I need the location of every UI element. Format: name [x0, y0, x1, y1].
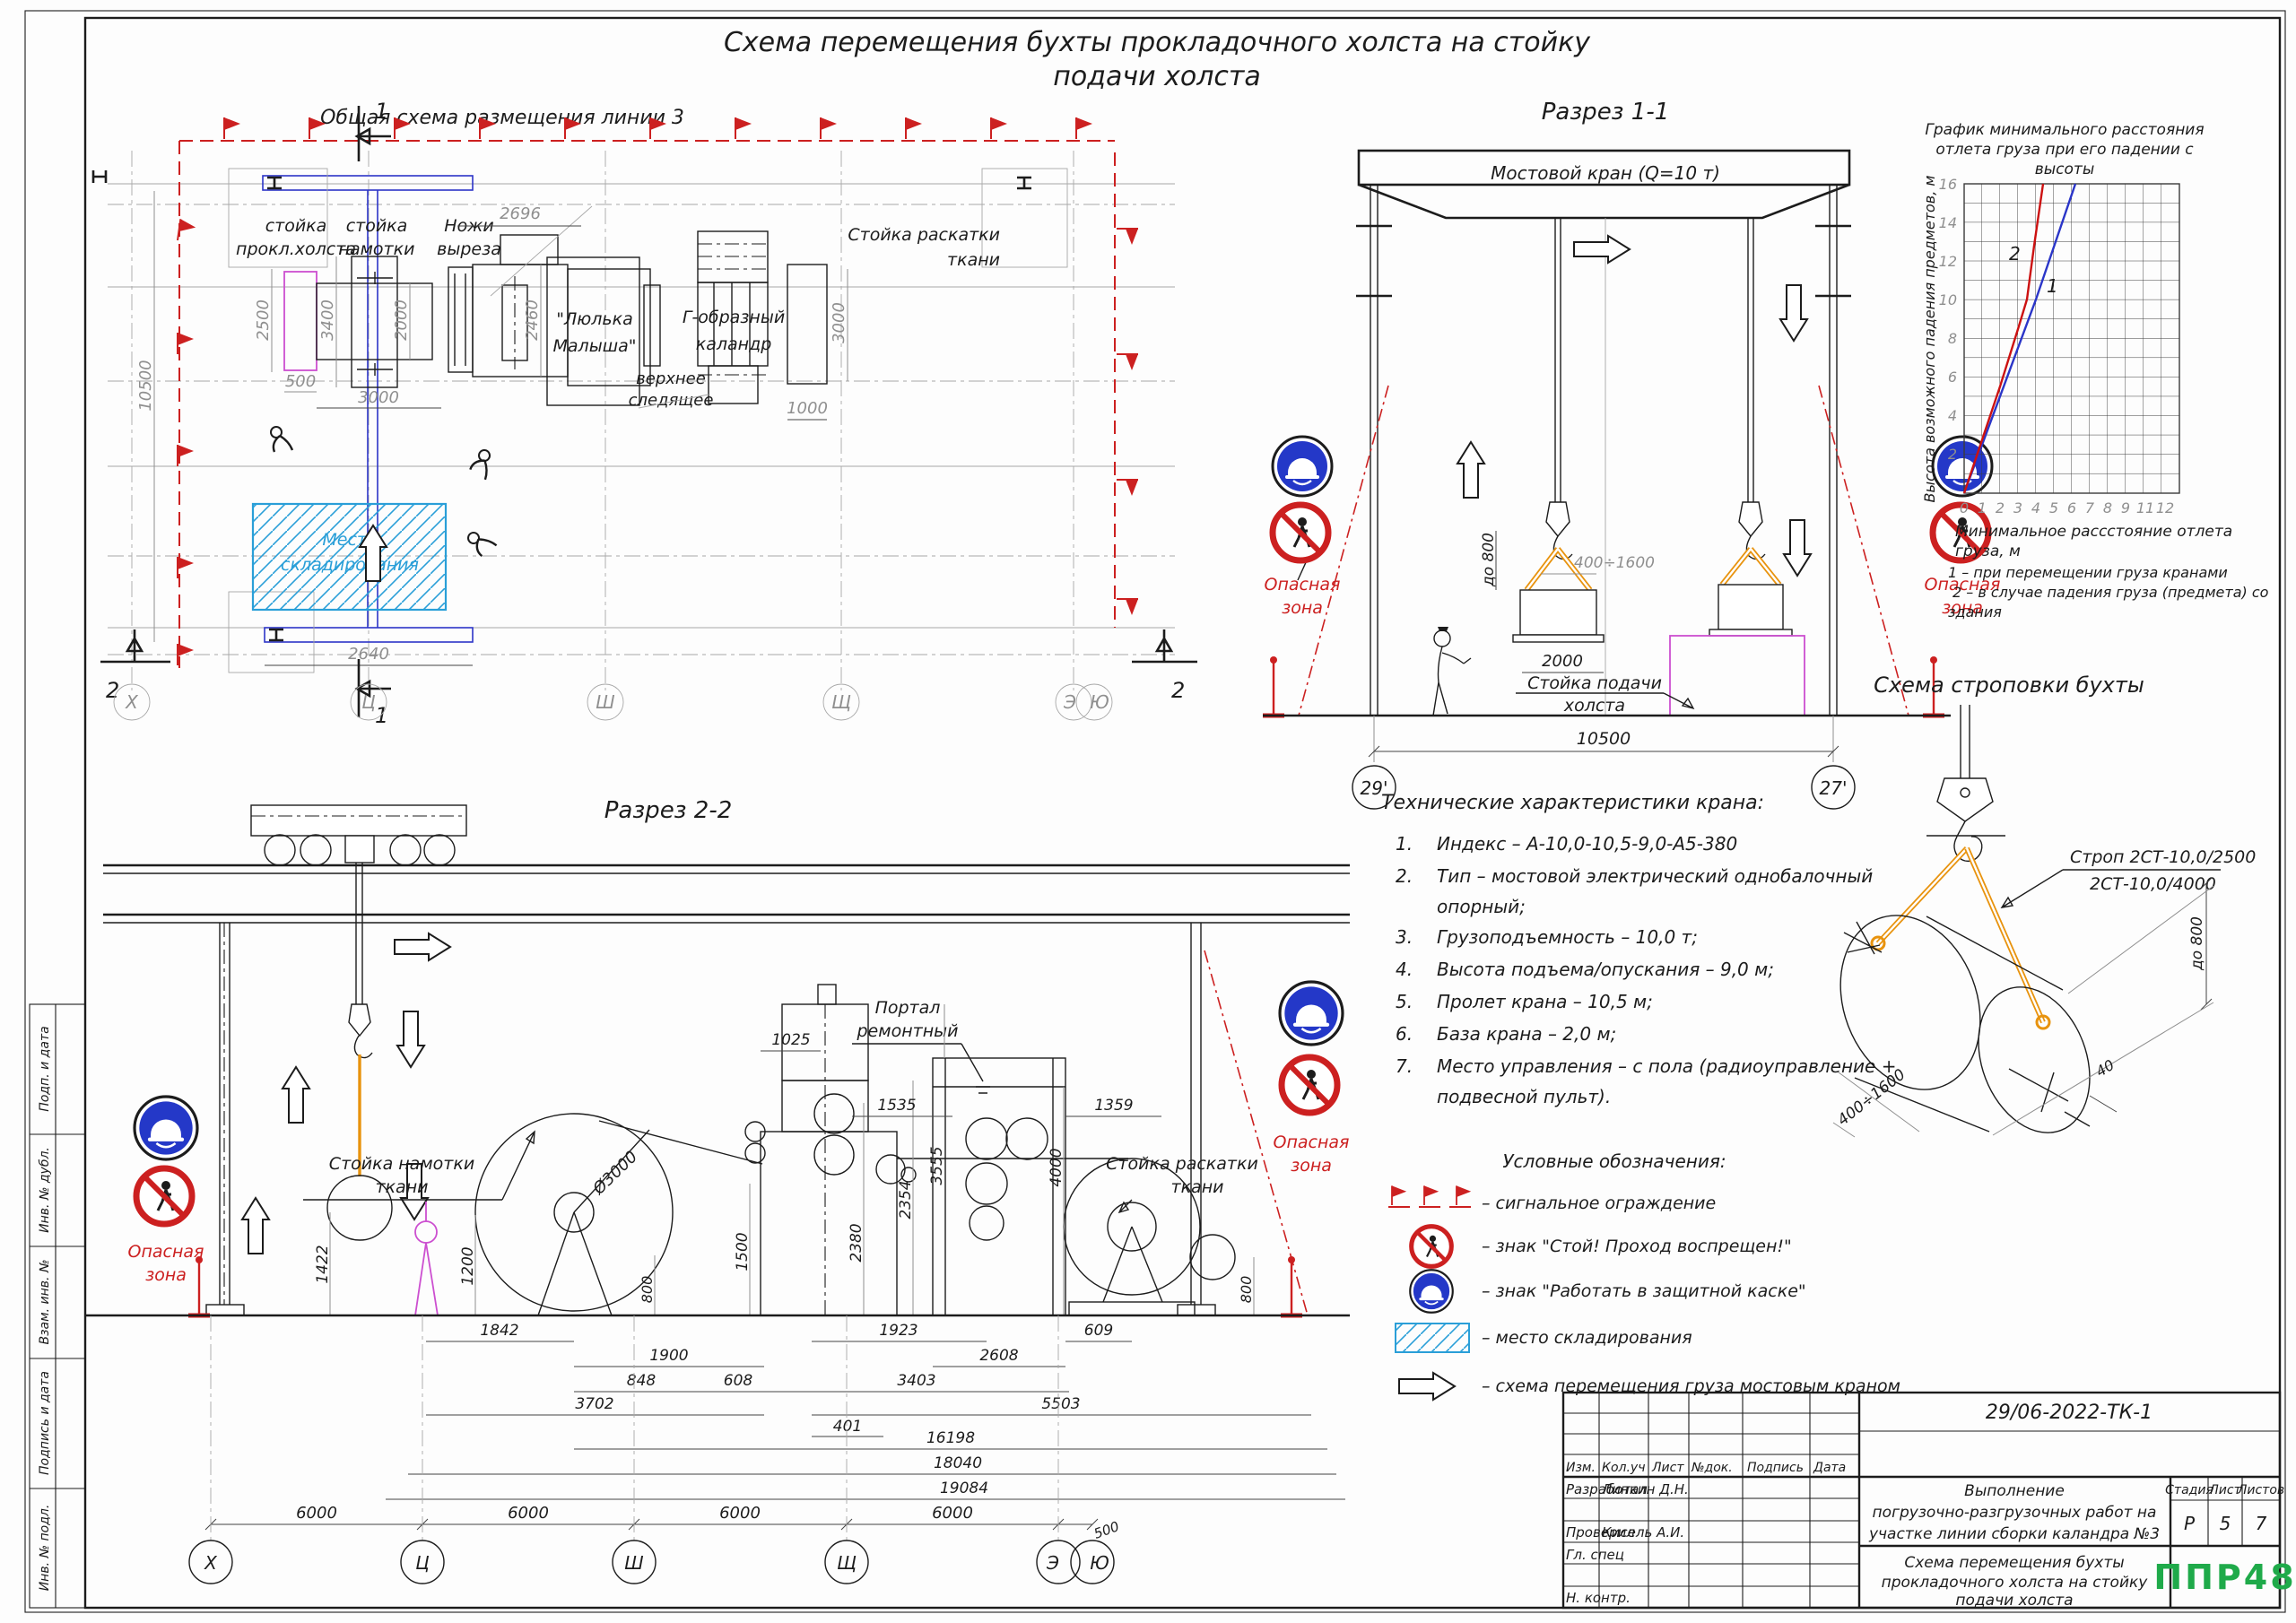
series-label-2: 2: [2009, 243, 2021, 265]
worker-figure: [466, 525, 498, 558]
dim: 1359: [1094, 1097, 1133, 1115]
stand-podachi-label: Стойка подачи холста: [1516, 673, 1693, 716]
label: ткани: [947, 250, 1000, 270]
mark: 1: [375, 703, 388, 728]
tick: 12: [1939, 253, 1957, 270]
sheet-value: 5: [2220, 1513, 2231, 1534]
dim: 10500: [1577, 729, 1631, 749]
label: стойка: [265, 216, 327, 236]
chart-xlabel: Минимальное рассстояние отлета: [1955, 523, 2232, 541]
label: ткани: [376, 1177, 429, 1197]
dim: 800: [639, 1276, 656, 1304]
dim: до 800: [1480, 533, 1498, 587]
dim: 3702: [575, 1395, 613, 1413]
item-num: 6.: [1396, 1023, 1413, 1045]
dim: 401: [833, 1418, 862, 1436]
sheet-title: Схема перемещения бухты прокладочного хо…: [724, 27, 1591, 92]
tick: 0: [1960, 499, 1969, 516]
section-title: Разрез 2-2: [604, 797, 733, 824]
up-arrow: [242, 1198, 269, 1254]
dim: 2640: [348, 645, 389, 664]
down-arrow: [397, 1011, 424, 1067]
stamp-label: Инв. № подл.: [38, 1505, 52, 1592]
item-text: База крана – 2,0 м;: [1437, 1023, 1616, 1045]
move-arrow-icon: [1399, 1373, 1455, 1400]
dim: 800: [1238, 1276, 1255, 1304]
item-num: 5.: [1396, 991, 1413, 1012]
stop-sign-icon: [1412, 1227, 1452, 1267]
item-num: 3.: [1396, 926, 1413, 948]
tick: 5: [2049, 499, 2058, 516]
chart-title: высоты: [2035, 161, 2095, 178]
axis: Ю: [1090, 691, 1109, 713]
person: Кисель А.И.: [1602, 1524, 1684, 1541]
dim: 1900: [649, 1347, 688, 1365]
label: следящее: [629, 391, 714, 410]
dim: 2460: [523, 299, 542, 341]
crane-hook: [1926, 705, 2005, 861]
danger-label: зона: [1282, 598, 1323, 618]
dim: 3000: [830, 302, 848, 343]
lower-down-arrow: [1784, 520, 1811, 576]
chart-note-2: здания: [1948, 603, 2002, 621]
sling-dimensions: до 800 40 400÷1600: [1833, 878, 2213, 1137]
col-header: Подпись: [1747, 1461, 1804, 1475]
chart-title: отлета груза при его падении с: [1935, 141, 2194, 159]
dim: 4000: [1048, 1148, 1065, 1186]
legend-item: – место складирования: [1482, 1328, 1692, 1348]
item-num: 4.: [1396, 959, 1413, 980]
item-num: 7.: [1396, 1055, 1413, 1077]
label: Малыша": [553, 336, 637, 356]
item-text: Индекс – А-10,0-10,5-9,0-А5-380: [1437, 833, 1737, 855]
chart-note-2: 2 – в случае падения груза (предмета) со: [1952, 584, 2269, 601]
axis: Э: [1063, 691, 1076, 713]
mark: 2: [1171, 678, 1185, 703]
plan-axis-bubbles: Х Ц Ш Щ Э Ю: [114, 684, 1112, 720]
storage-area: Место складирования: [253, 504, 446, 610]
dim: 1842: [480, 1322, 518, 1340]
sheets-header: Листов: [2237, 1483, 2284, 1497]
dim: 3555: [928, 1146, 946, 1185]
crane-label: Мостовой кран (Q=10 т): [1491, 162, 1720, 184]
tick: 3: [2013, 499, 2022, 516]
col-header: Изм.: [1566, 1461, 1596, 1475]
role: Гл. спец: [1566, 1547, 1624, 1563]
company-logo: ППР48: [2153, 1558, 2296, 1597]
worker-figure: [467, 448, 500, 482]
tick: 8: [1948, 330, 1957, 347]
legend-flags-icon: [1388, 1185, 1471, 1207]
item-text: Высота подъема/опускания – 9,0 м;: [1437, 959, 1774, 980]
dim: 608: [724, 1372, 753, 1390]
label: ткани: [1171, 1177, 1224, 1197]
label: холста: [1563, 696, 1625, 716]
sling-title: Схема строповки бухты: [1874, 673, 2144, 698]
label: выреза: [437, 239, 501, 259]
storage-label: складирования: [281, 555, 419, 575]
series-label-1: 1: [2047, 275, 2058, 297]
chart-plot-area: [1964, 184, 2179, 493]
project-line: Выполнение: [1964, 1482, 2065, 1500]
item-text: Тип – мостовой электрический однобалочны…: [1437, 865, 1873, 887]
span-dimension: 10500: [1369, 716, 1839, 762]
dim: 500: [1091, 1518, 1121, 1542]
person: Линкин Д.Н.: [1601, 1481, 1689, 1497]
sling-scheme: Схема строповки бухты Строп 2СТ-10,0/250…: [1816, 673, 2256, 1149]
tick: 14: [1939, 214, 1957, 231]
worker-figure: [1433, 627, 1471, 716]
dim: 500: [285, 372, 316, 391]
dim: 609: [1084, 1322, 1113, 1340]
label: Стойка раскатки: [1106, 1154, 1258, 1174]
subtitle-line: прокладочного холста на стойку: [1882, 1574, 2149, 1592]
storage-icon: [1396, 1324, 1469, 1352]
plan-dimensions: 2696 2500 3400 2000 2460 500 3000 10500 …: [136, 191, 848, 665]
dim: 19084: [940, 1480, 988, 1497]
axis: Ю: [1090, 1552, 1109, 1574]
label: ремонтный: [857, 1021, 959, 1041]
axis: Ш: [596, 691, 614, 713]
axis: Э: [1046, 1552, 1059, 1574]
label: каландр: [696, 334, 772, 354]
danger-label: Опасная: [1274, 1133, 1350, 1152]
axis: Щ: [837, 1552, 857, 1574]
dim: 10500: [136, 360, 155, 411]
item-num: 1.: [1396, 833, 1413, 855]
legend-item: – знак "Стой! Проход воспрещен!": [1482, 1237, 1792, 1256]
drawing-sheet: Подп. и дата Инв. № дубл. Взам. инв. № П…: [0, 0, 2296, 1623]
axis: 27': [1820, 777, 1848, 799]
sheet-title-line1: Схема перемещения бухты прокладочного хо…: [724, 27, 1591, 58]
item-text: опорный;: [1437, 896, 1526, 917]
chart-title: График минимального расстояния: [1925, 121, 2204, 139]
move-right-arrow: [1574, 236, 1630, 263]
chart-ylabel: Высота возможного падения предметов, м: [1921, 176, 1938, 503]
item-num: 2.: [1396, 865, 1413, 887]
sheet-title-line2: подачи холста: [1053, 61, 1261, 92]
dim: 1500: [734, 1232, 752, 1271]
danger-label: Опасная: [128, 1242, 204, 1262]
specs-title: Технические характеристики крана:: [1381, 792, 1764, 814]
dim: 848: [627, 1372, 657, 1390]
dim: 2696: [500, 204, 541, 223]
danger-label: зона: [145, 1265, 187, 1285]
label: Портал: [875, 998, 941, 1018]
item-text: Пролет крана – 10,5 м;: [1437, 991, 1653, 1012]
project-line: участке линии сборки каландра №3: [1868, 1525, 2160, 1543]
crane-rails: [103, 865, 1350, 923]
dim: 3403: [897, 1372, 935, 1390]
worker-figure: [271, 427, 292, 452]
stand-raskatki-sec: Стойка раскатки ткани: [1064, 1154, 1258, 1315]
col-header: Лист: [1651, 1461, 1684, 1475]
dim: 40: [2092, 1056, 2117, 1081]
col-header: Дата: [1813, 1461, 1846, 1475]
lift-up-arrow: [1457, 442, 1484, 498]
stand-raskatki-plan: Стойка раскатки ткани: [787, 225, 1000, 384]
strop-label: Строп 2СТ-10,0/2500: [2070, 847, 2256, 867]
label: верхнее: [636, 369, 706, 388]
tick: 11: [2136, 499, 2154, 516]
dim: 2500: [254, 299, 273, 341]
axis: Щ: [831, 691, 851, 713]
dim: 1422: [314, 1245, 332, 1283]
tick: 16: [1939, 176, 1957, 193]
danger-label: зона: [1291, 1156, 1332, 1176]
item-text: Грузоподъемность – 10,0 т;: [1437, 926, 1698, 948]
dim: 18040: [934, 1454, 982, 1472]
col-header: №док.: [1691, 1461, 1733, 1475]
axis: Ц: [415, 1552, 430, 1574]
tick: 4: [1948, 407, 1957, 424]
col-header: Кол.уч: [1602, 1461, 1645, 1475]
danger-zone-left: Опасная зона: [1263, 386, 1388, 716]
label: стойка: [346, 216, 408, 236]
legend-item: – знак "Работать в защитной каске": [1482, 1281, 1806, 1301]
strop-label: 2СТ-10,0/4000: [2090, 874, 2216, 894]
mark: 2: [106, 678, 119, 703]
dim: 2380: [848, 1223, 865, 1262]
legend-title: Условные обозначения:: [1502, 1150, 1726, 1172]
label: Стойка подачи: [1527, 673, 1662, 693]
dim: 1025: [771, 1031, 810, 1049]
section-2-2: Разрез 2-2 Стойка намот: [85, 797, 1350, 1584]
stage-value: Р: [2184, 1513, 2196, 1534]
item-text: подвесной пульт).: [1437, 1086, 1611, 1107]
role: Н. контр.: [1566, 1590, 1631, 1606]
danger-zone-right-22: Опасная зона: [1205, 950, 1349, 1315]
up-arrow: [283, 1067, 309, 1123]
stamp-label: Инв. № дубл.: [38, 1147, 52, 1233]
slings: [1872, 848, 2049, 1028]
tick: 10: [1939, 291, 1957, 308]
dim: 2000: [1542, 652, 1583, 671]
dim: 5503: [1041, 1395, 1080, 1413]
chart-note-1: 1 – при перемещении груза кранами: [1948, 564, 2228, 581]
tick: 6: [1948, 369, 1957, 386]
tick: 2: [1948, 446, 1957, 463]
axis: Х: [204, 1552, 218, 1574]
tick: 6: [2067, 499, 2076, 516]
sheets-value: 7: [2256, 1513, 2267, 1534]
chart-xlabel: груза, м: [1955, 542, 2021, 560]
lower-down-arrow: [1780, 285, 1807, 341]
dim: 1000: [787, 399, 828, 418]
label: Стойка раскатки: [848, 225, 1000, 245]
dim: 6000: [932, 1504, 973, 1523]
stamp-label: Взам. инв. №: [38, 1259, 52, 1344]
mark: 1: [375, 99, 388, 124]
tick: 1: [1978, 499, 1987, 516]
tick: 12: [2156, 499, 2174, 516]
crane-specs: Технические характеристики крана: 1. Инд…: [1381, 792, 1896, 1107]
dim: 400÷1600: [1574, 554, 1655, 572]
project-line: погрузочно-разгрузочных работ на: [1873, 1504, 2157, 1522]
magenta-stand: [415, 1202, 438, 1315]
dim: Ø3000: [589, 1148, 641, 1199]
crane-trolley: [251, 805, 466, 865]
helmet-sign-icon: [1410, 1270, 1453, 1313]
stamp-label: Подп. и дата: [38, 1026, 52, 1111]
chart-x-ticks: 0 1 2 3 4 5 6 7 8 9 11 12: [1960, 499, 2174, 516]
dim: 6000: [508, 1504, 549, 1523]
dim: 1535: [877, 1097, 916, 1115]
frame-stamp-column: Подп. и дата Инв. № дубл. Взам. инв. № П…: [30, 1004, 85, 1608]
tick: 9: [2121, 499, 2130, 516]
tick: 4: [2031, 499, 2040, 516]
fall-distance-chart: График минимального расстояния отлета гр…: [1921, 121, 2269, 621]
sec22-dim-tiers: 1842 1923 609 1900 2608 848 608 3403 370…: [205, 1322, 1345, 1542]
section-1-1: Разрез 1-1 Мостовой кран (Q=10 т) 400÷16…: [1263, 99, 2000, 809]
dim: 2608: [979, 1347, 1018, 1365]
label: намотки: [339, 239, 415, 259]
legend: Условные обозначения: – сигнальное ограж…: [1388, 1150, 1900, 1400]
stage-header: Стадия: [2165, 1483, 2213, 1497]
axis: Х: [125, 691, 139, 713]
dim: 1923: [879, 1322, 918, 1340]
danger-label: Опасная: [1265, 575, 1341, 595]
label: Стойка намотки: [329, 1154, 474, 1174]
subtitle-line: подачи холста: [1955, 1592, 2073, 1610]
hoist-left: 400÷1600 до 800 2000: [1480, 218, 1655, 673]
sling-labels: Строп 2СТ-10,0/2500 2СТ-10,0/4000: [2002, 847, 2256, 907]
subtitle-line: Схема перемещения бухты: [1904, 1554, 2124, 1572]
dim: 3400: [318, 299, 337, 341]
dim: 16198: [926, 1429, 975, 1447]
tick: 7: [2085, 499, 2095, 516]
hoist-right: [1670, 218, 1805, 716]
title-block: 29/06-2022-ТК-1 Изм. Кол.уч Лист №док. П…: [1563, 1393, 2296, 1610]
label: "Люлька: [556, 309, 632, 329]
axis: Ц: [361, 691, 376, 713]
dim: 1200: [459, 1246, 477, 1285]
axis: Ш: [624, 1552, 643, 1574]
chart-y-ticks: 2 4 6 8 10 12 14 16: [1939, 176, 1957, 463]
legend-item: – сигнальное ограждение: [1482, 1193, 1716, 1213]
plan-view: Общая схема размещения линии 3: [93, 99, 1307, 728]
doc-number: 29/06-2022-ТК-1: [1986, 1402, 2152, 1424]
dim: 6000: [719, 1504, 761, 1523]
tick: 8: [2103, 499, 2112, 516]
danger-zone-left-22: Опасная зона: [128, 1097, 210, 1315]
dim: 3000: [358, 388, 399, 407]
verhnee-sledyaschee: верхнее следящее: [629, 369, 714, 410]
tick: 2: [1996, 499, 2005, 516]
dim: до 800: [2188, 916, 2206, 971]
move-right-arrow: [395, 933, 450, 960]
item-text: Место управления – с пола (радиоуправлен…: [1437, 1055, 1896, 1077]
label: Г-образный: [683, 308, 785, 327]
dim: 2000: [392, 299, 411, 341]
section-title: Разрез 1-1: [1542, 99, 1670, 126]
stamp-label: Подпись и дата: [38, 1371, 52, 1475]
dim: 6000: [296, 1504, 337, 1523]
dim: 2354: [897, 1180, 915, 1219]
